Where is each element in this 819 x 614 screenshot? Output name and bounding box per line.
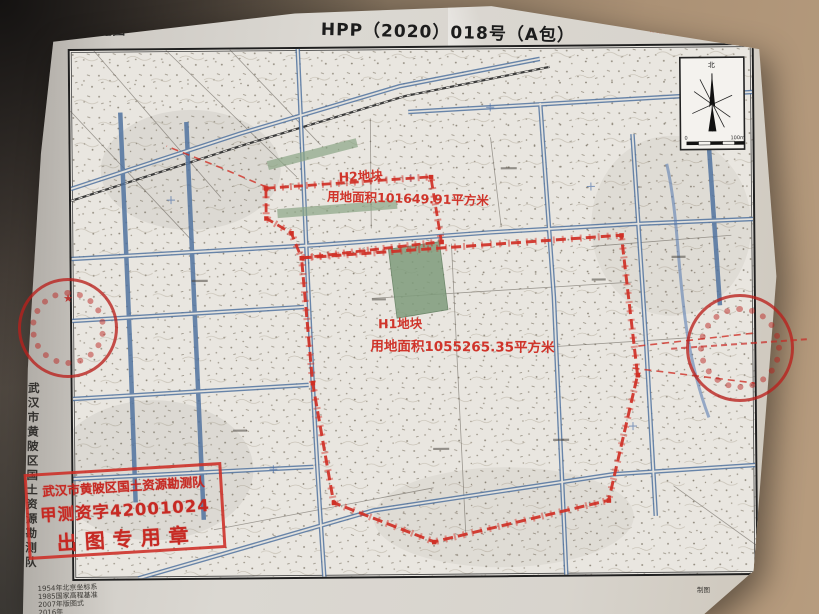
round-stamp-right-arc-text (698, 306, 782, 390)
compass-box: 北 (680, 57, 745, 150)
parcel-h2-name-label: H2地块 (338, 168, 383, 185)
round-stamp-right (686, 294, 794, 402)
map-type-label: 宗地图 (86, 19, 126, 39)
scale-end-label: 100m (730, 135, 745, 141)
doc-number-label: 陵供2020第14号 (650, 22, 720, 44)
scale-zero-label: 0 (684, 136, 687, 142)
footer-notes: 1954年北京坐标系 1985国家高程基准 2007年版图式 2016年 (37, 583, 98, 614)
survey-team-stamp: 武汉市黄陂区国土资源勘测队 甲测资字42001024 出图专用章 (24, 462, 227, 560)
photo-background: 宗地图 HPP（2020）018号（A包） 陵供2020第14号 (0, 0, 819, 614)
map-credit-label: 制图 (697, 584, 710, 594)
parcel-h1-area-label: 用地面积1055265.35平方米 (370, 337, 555, 356)
parcel-h1-name-label: H1地块 (378, 316, 423, 331)
sheet-title: HPP（2020）018号（A包） (318, 15, 579, 46)
green-area (388, 242, 448, 319)
round-stamp-left: ★ (18, 278, 118, 378)
note-partial-line: 2016年 (38, 607, 98, 614)
north-label: 北 (708, 61, 715, 69)
star-icon: ★ (63, 292, 73, 305)
